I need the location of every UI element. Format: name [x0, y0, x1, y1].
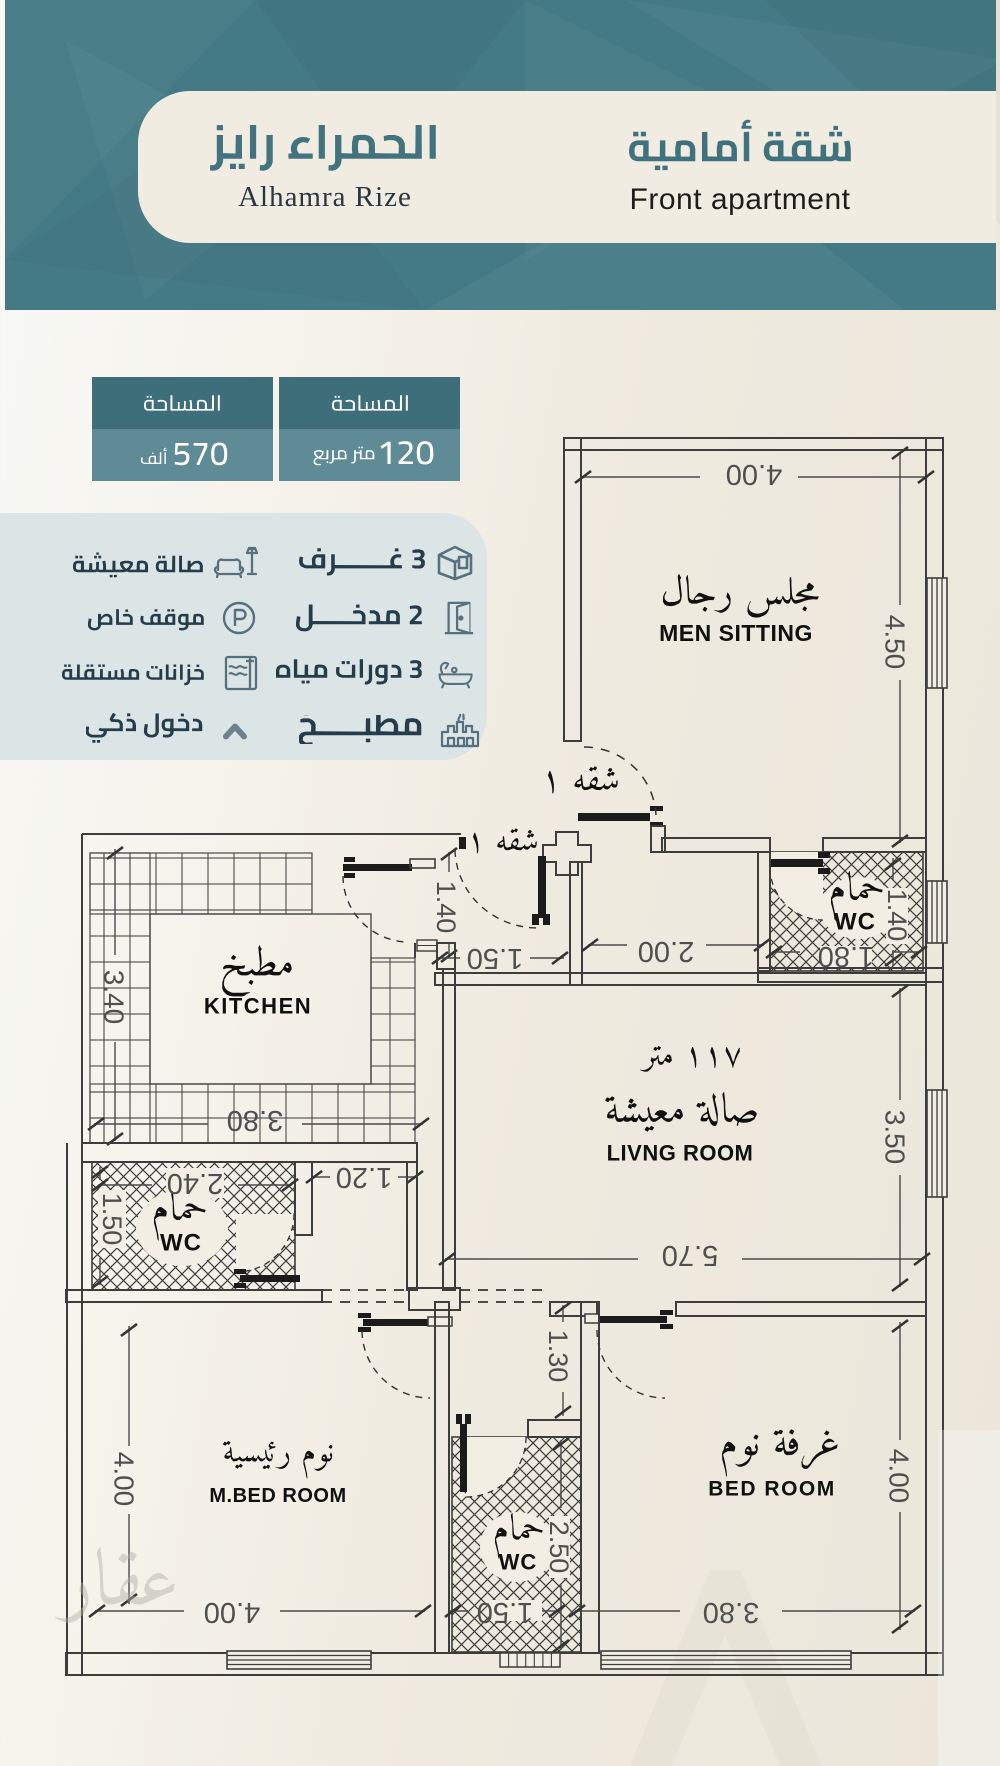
- svg-text:M.BED ROOM: M.BED ROOM: [209, 1485, 346, 1507]
- svg-text:3.40: 3.40: [99, 970, 130, 1025]
- svg-text:1.80: 1.80: [818, 940, 874, 972]
- svg-text:1.20: 1.20: [336, 1161, 392, 1193]
- svg-text:5.70: 5.70: [662, 1239, 718, 1271]
- svg-text:KITCHEN: KITCHEN: [204, 994, 312, 1019]
- svg-text:4.00: 4.00: [726, 458, 782, 490]
- svg-text:4.00: 4.00: [204, 1596, 260, 1628]
- svg-text:WC: WC: [834, 909, 876, 936]
- svg-text:1.50: 1.50: [477, 1596, 533, 1628]
- svg-text:3.80: 3.80: [227, 1104, 283, 1136]
- svg-text:4.00: 4.00: [109, 1452, 140, 1507]
- svg-text:WC: WC: [160, 1230, 202, 1257]
- svg-text:3.50: 3.50: [880, 1110, 911, 1165]
- svg-text:4.50: 4.50: [880, 615, 911, 670]
- svg-text:1.40: 1.40: [882, 889, 912, 942]
- svg-text:2.00: 2.00: [638, 935, 694, 967]
- svg-text:1.50: 1.50: [97, 1193, 127, 1246]
- svg-text:WC: WC: [499, 1550, 538, 1575]
- svg-text:2.40: 2.40: [167, 1167, 223, 1199]
- svg-text:1.30: 1.30: [543, 1330, 573, 1383]
- svg-text:LIVNG ROOM: LIVNG ROOM: [607, 1141, 754, 1166]
- svg-text:MEN SITTING: MEN SITTING: [659, 620, 813, 646]
- svg-text:1.40: 1.40: [431, 881, 461, 934]
- svg-text:1.50: 1.50: [467, 942, 523, 974]
